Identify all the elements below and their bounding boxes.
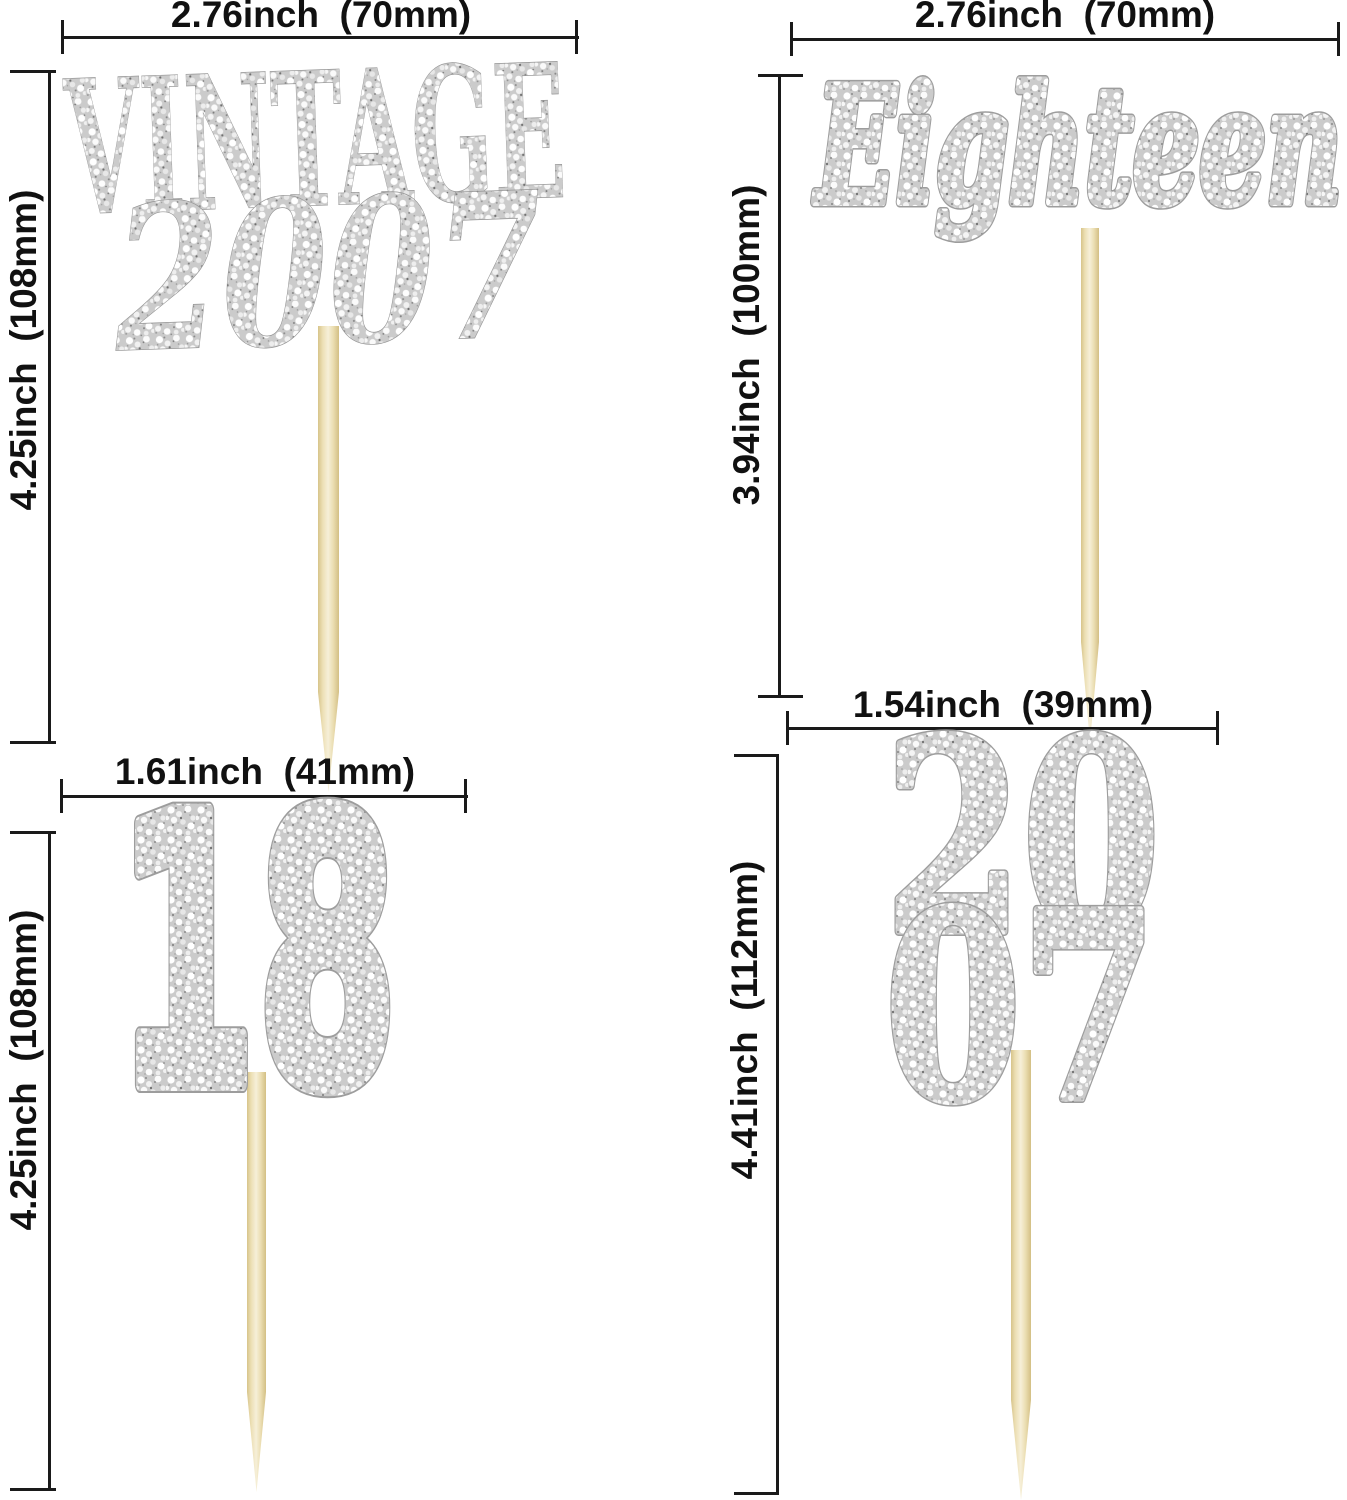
dimension-tick <box>464 779 467 813</box>
height-dimension-line <box>778 74 781 698</box>
dimension-tick <box>10 1488 56 1491</box>
height-dimension-label: 4.41inch (112mm) <box>724 861 766 1180</box>
dimension-tick <box>786 711 789 745</box>
dimension-tick <box>734 1492 779 1495</box>
dimension-tick <box>10 831 56 834</box>
dimension-tick <box>575 20 578 54</box>
dimension-tick <box>60 779 63 813</box>
height-dimension-label: 4.25inch (108mm) <box>3 190 45 511</box>
glitter-topper-eighteen: Eighteen Eighteen <box>812 62 1347 307</box>
topper-text-07: 07 <box>885 856 1157 1159</box>
width-dimension-line <box>792 38 1339 41</box>
topper-text-2007: 2007 <box>109 148 546 398</box>
dimension-tick <box>10 741 56 744</box>
dimension-tick <box>1216 711 1219 745</box>
glitter-topper-vintage-2007: VINTAGE 2007 <box>60 60 580 360</box>
glitter-topper-2007-stacked: 20 20 07 07 <box>878 730 1168 1125</box>
height-dimension-label: 3.94inch (100mm) <box>726 185 768 506</box>
topper-art: VINTAGE 2007 <box>61 22 574 399</box>
dimension-tick <box>790 22 793 56</box>
dimension-tick <box>758 74 803 77</box>
dimension-tick <box>734 754 779 757</box>
height-dimension-line <box>776 754 779 1495</box>
height-dimension-label: 4.25inch (108mm) <box>3 910 45 1231</box>
width-dimension-label: 2.76inch (70mm) <box>792 0 1338 36</box>
height-dimension-line <box>48 831 51 1491</box>
topper-text-eighteen: Eighteen <box>813 52 1342 240</box>
glitter-topper-18: 18 18 <box>106 806 406 1098</box>
height-dimension-line <box>48 70 51 744</box>
dimension-tick <box>1337 22 1340 56</box>
dimension-tick <box>10 70 56 73</box>
topper-text-18: 18 <box>116 737 398 1173</box>
product-dimension-sheet: 2.76inch (70mm) 4.25inch (108mm) VINTAGE… <box>0 0 1347 1500</box>
wooden-pick <box>318 326 339 792</box>
